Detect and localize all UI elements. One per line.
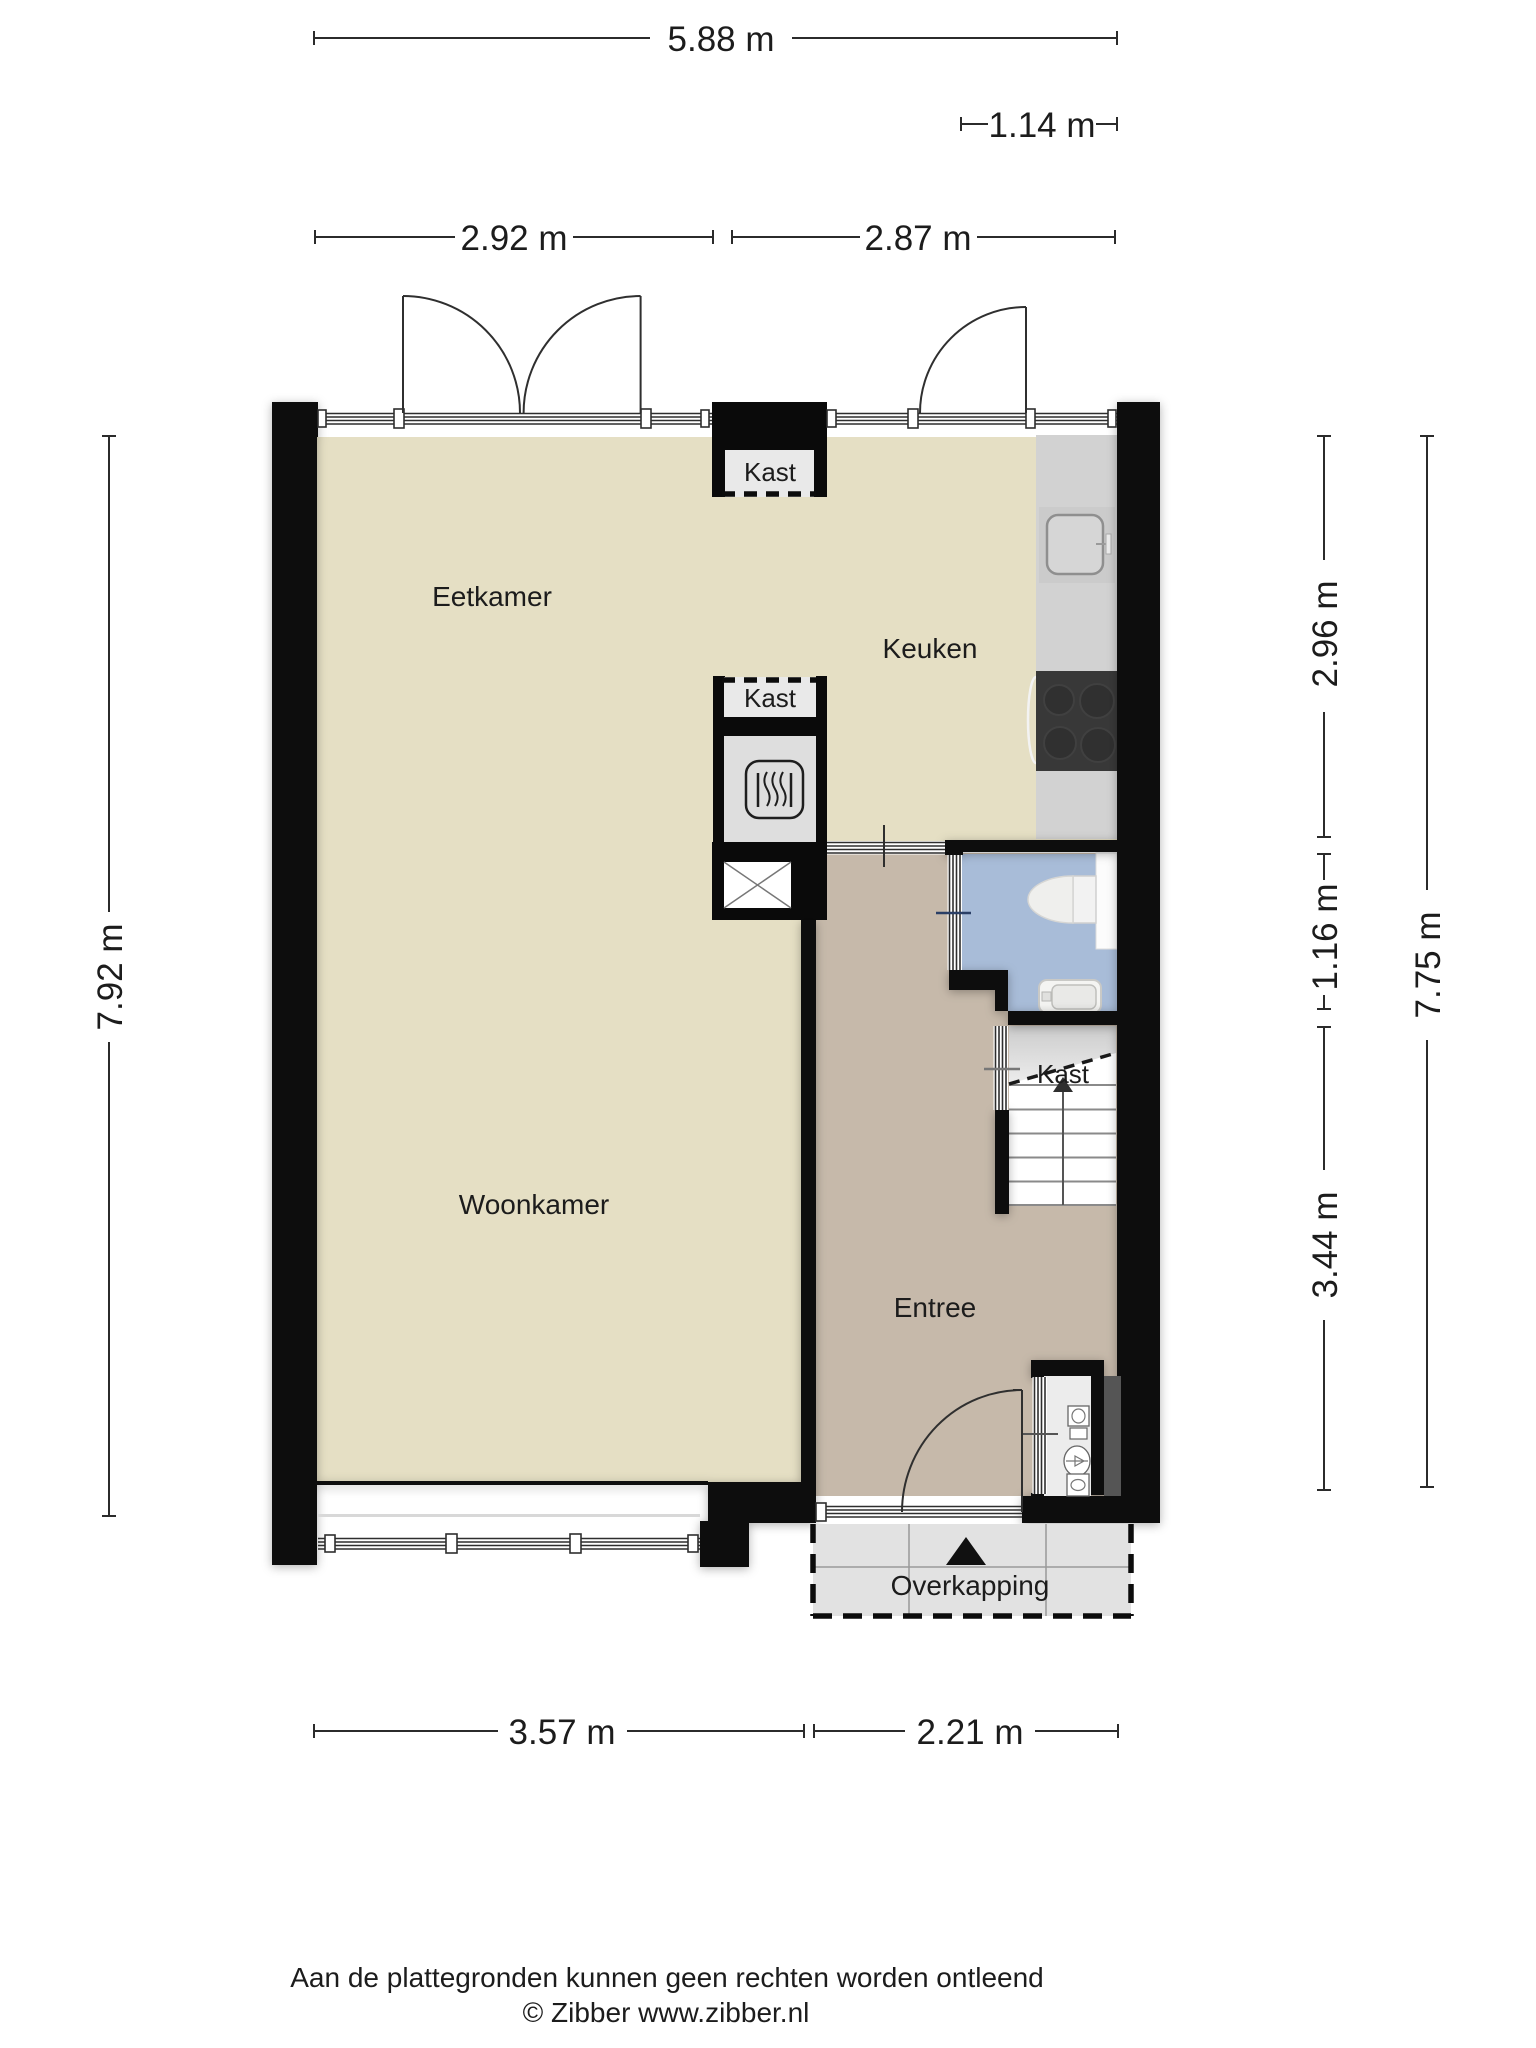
svg-text:2.87 m: 2.87 m <box>865 219 972 258</box>
svg-text:1.16 m: 1.16 m <box>1306 884 1345 991</box>
svg-text:2.96 m: 2.96 m <box>1306 581 1345 688</box>
svg-text:7.75 m: 7.75 m <box>1409 912 1448 1019</box>
svg-text:2.21 m: 2.21 m <box>917 1713 1024 1752</box>
svg-text:Woonkamer: Woonkamer <box>459 1189 609 1220</box>
svg-text:Kast: Kast <box>1037 1059 1090 1089</box>
svg-text:Kast: Kast <box>744 457 797 487</box>
svg-text:Kast: Kast <box>744 683 797 713</box>
svg-text:7.92 m: 7.92 m <box>91 924 130 1031</box>
svg-text:Overkapping: Overkapping <box>891 1570 1050 1601</box>
svg-text:Eetkamer: Eetkamer <box>432 581 552 612</box>
svg-text:3.44 m: 3.44 m <box>1306 1192 1345 1299</box>
svg-text:Keuken: Keuken <box>883 633 978 664</box>
svg-text:© Zibber www.zibber.nl: © Zibber www.zibber.nl <box>523 1997 810 2028</box>
svg-text:Aan de plattegronden kunnen ge: Aan de plattegronden kunnen geen rechten… <box>290 1962 1043 1993</box>
svg-text:3.57 m: 3.57 m <box>509 1713 616 1752</box>
svg-text:2.92 m: 2.92 m <box>461 219 568 258</box>
svg-text:Entree: Entree <box>894 1292 977 1323</box>
svg-text:1.14 m: 1.14 m <box>989 106 1096 145</box>
svg-text:5.88 m: 5.88 m <box>668 20 775 59</box>
